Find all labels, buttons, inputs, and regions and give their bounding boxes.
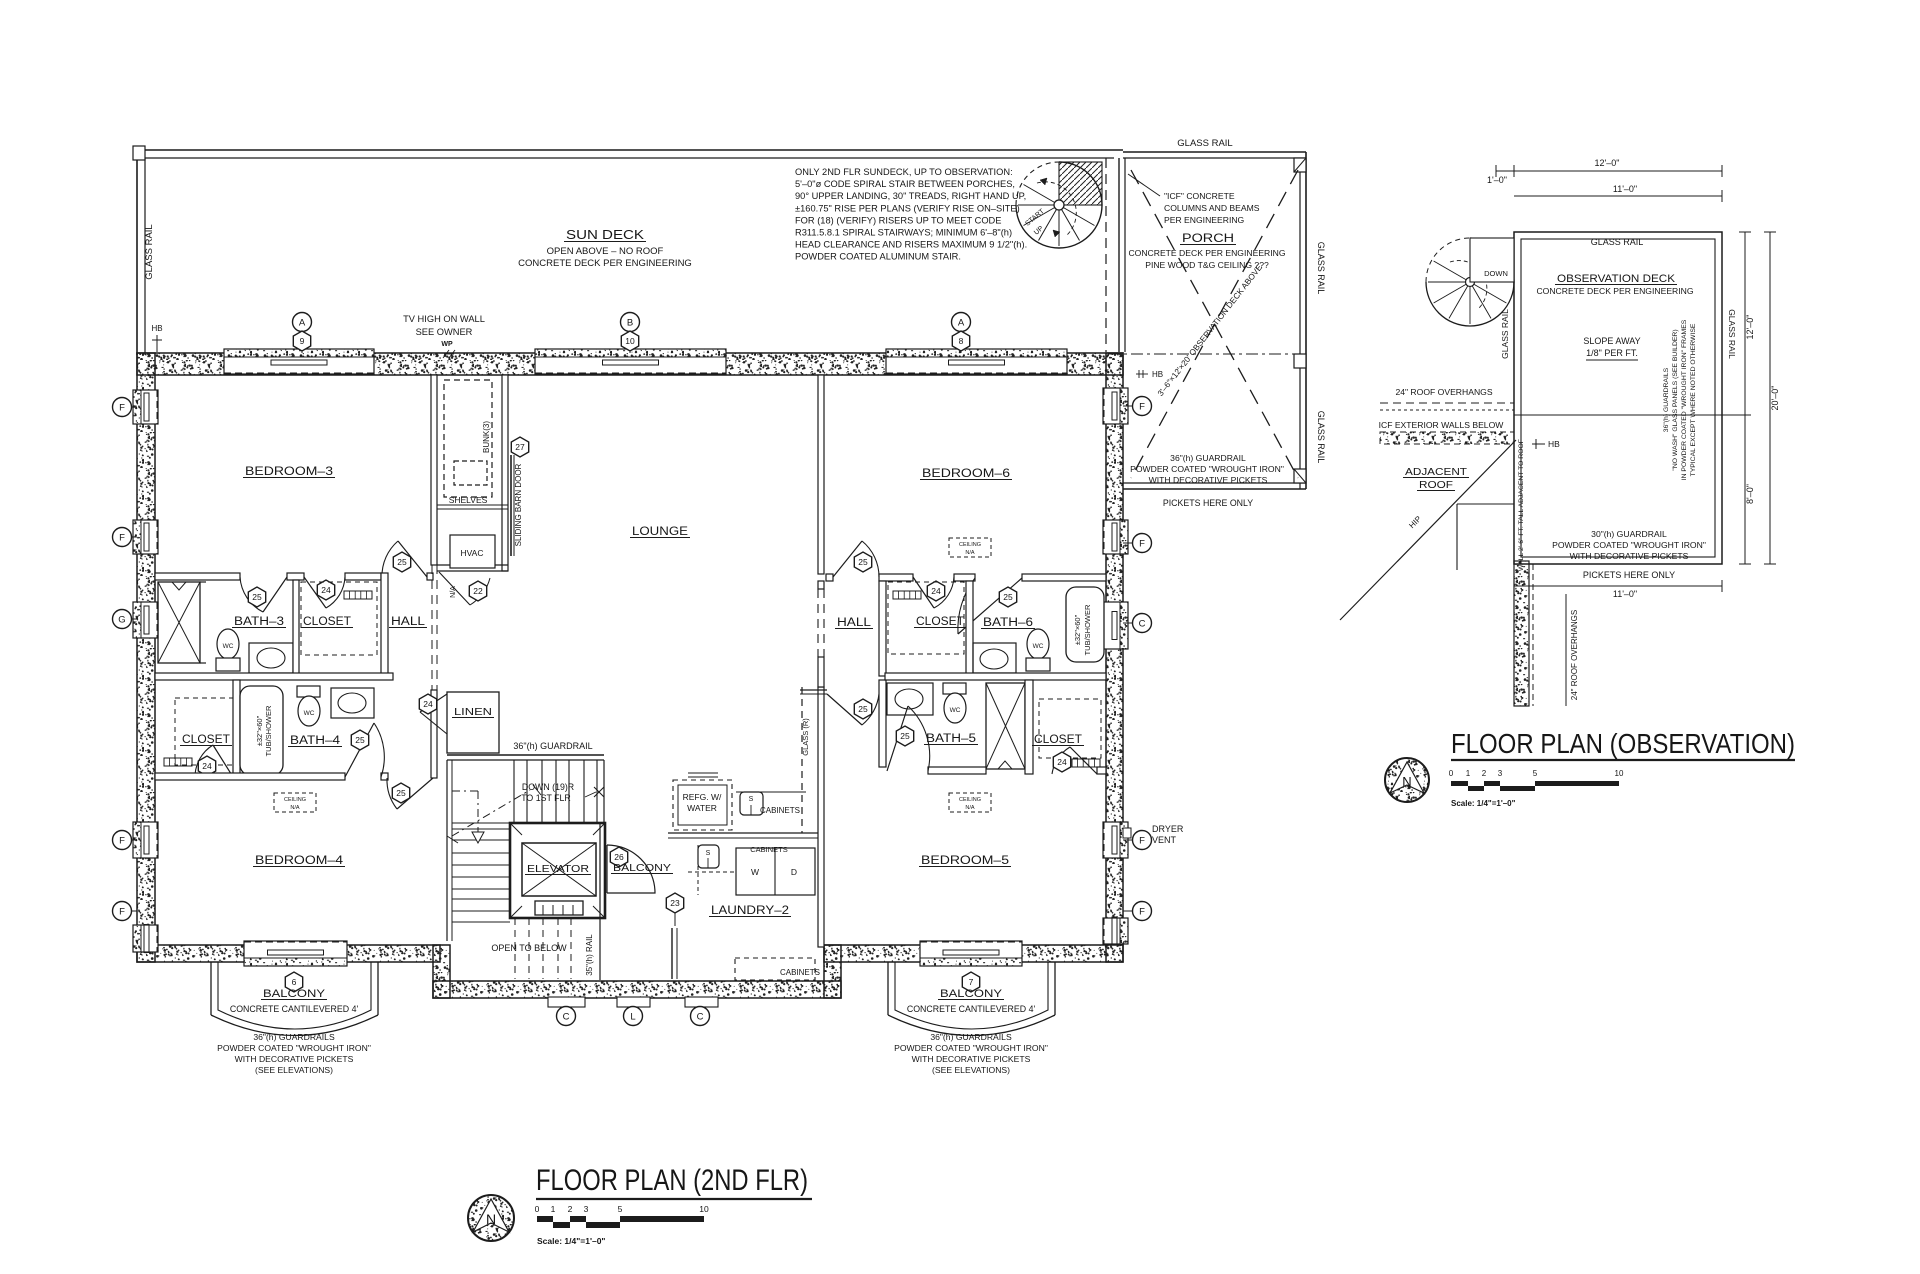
svg-text:CONCRETE CANTILEVERED 4': CONCRETE CANTILEVERED 4': [907, 1004, 1036, 1014]
svg-text:FOR (18) (VERIFY) RISERS UP TO: FOR (18) (VERIFY) RISERS UP TO MEET CODE: [795, 215, 1001, 225]
svg-text:PICKETS HERE ONLY: PICKETS HERE ONLY: [1163, 498, 1253, 508]
svg-text:36"(h) GUARDRAIL: 36"(h) GUARDRAIL: [513, 741, 592, 751]
svg-text:BATH–4: BATH–4: [290, 735, 341, 747]
svg-text:10: 10: [625, 336, 635, 346]
svg-text:CEILING: CEILING: [959, 797, 981, 803]
svg-text:3: 3: [584, 1204, 589, 1214]
svg-text:BATH–5: BATH–5: [926, 733, 976, 745]
svg-text:A: A: [958, 317, 965, 328]
svg-text:PORCH: PORCH: [1182, 231, 1234, 245]
svg-text:TO 1ST FLR: TO 1ST FLR: [521, 793, 571, 803]
svg-text:N/A: N/A: [965, 550, 975, 556]
svg-text:BEDROOM–3: BEDROOM–3: [245, 464, 333, 478]
svg-text:FLOOR PLAN (2ND FLR): FLOOR PLAN (2ND FLR): [536, 1164, 808, 1197]
svg-text:(SEE ELEVATIONS): (SEE ELEVATIONS): [932, 1065, 1010, 1075]
svg-text:5: 5: [618, 1204, 623, 1214]
svg-text:SHELVES: SHELVES: [449, 495, 488, 505]
svg-text:23: 23: [670, 898, 680, 908]
svg-text:HEAD CLEARANCE AND RISERS MAXI: HEAD CLEARANCE AND RISERS MAXIMUM 9 1/2"…: [795, 240, 1027, 250]
svg-text:CONCRETE DECK PER ENGINEERING: CONCRETE DECK PER ENGINEERING: [1128, 248, 1285, 258]
svg-text:OBSERVATION DECK: OBSERVATION DECK: [1557, 273, 1676, 285]
svg-text:GLASS RAIL: GLASS RAIL: [1727, 309, 1737, 359]
svg-text:±32"×60": ±32"×60": [255, 715, 264, 746]
svg-text:ADJACENT: ADJACENT: [1405, 467, 1467, 478]
svg-text:25: 25: [355, 735, 365, 745]
svg-text:"ICF" CONCRETE: "ICF" CONCRETE: [1164, 191, 1235, 201]
svg-text:CABINETS: CABINETS: [760, 806, 800, 815]
svg-text:11'–0": 11'–0": [1613, 184, 1637, 194]
svg-text:B: B: [627, 317, 633, 328]
svg-text:GLASS RAIL: GLASS RAIL: [1316, 242, 1326, 295]
svg-text:1: 1: [551, 1204, 556, 1214]
svg-text:2: 2: [1482, 769, 1487, 778]
svg-text:24: 24: [321, 585, 331, 595]
svg-text:24" ROOF OVERHANGS: 24" ROOF OVERHANGS: [1395, 387, 1492, 397]
svg-text:DOWN (19)R: DOWN (19)R: [522, 782, 574, 792]
svg-text:24: 24: [1057, 757, 1067, 767]
svg-text:24: 24: [931, 586, 941, 596]
svg-text:HB: HB: [1152, 370, 1163, 379]
svg-text:N: N: [486, 1211, 496, 1227]
svg-text:BALCONY: BALCONY: [613, 862, 671, 874]
svg-text:POWDER COATED ALUMINUM STAIR.: POWDER COATED ALUMINUM STAIR.: [795, 252, 961, 262]
svg-text:36"(h) GUARDRAILS: 36"(h) GUARDRAILS: [253, 1032, 335, 1042]
svg-text:11'–0": 11'–0": [1613, 589, 1637, 599]
svg-text:CABINETS: CABINETS: [780, 968, 820, 977]
svg-text:F: F: [1139, 538, 1145, 549]
svg-text:BATH–6: BATH–6: [983, 617, 1033, 629]
svg-text:N/A: N/A: [450, 586, 457, 598]
svg-text:10: 10: [699, 1204, 709, 1214]
svg-text:BEDROOM–5: BEDROOM–5: [921, 853, 1009, 867]
svg-text:WATER: WATER: [687, 803, 717, 813]
svg-text:20'–0": 20'–0": [1770, 386, 1780, 411]
svg-text:G: G: [118, 614, 125, 625]
svg-text:27: 27: [515, 442, 525, 452]
svg-text:VENT: VENT: [1152, 835, 1177, 845]
svg-text:DRYER: DRYER: [1152, 824, 1184, 834]
svg-text:2: 2: [568, 1204, 573, 1214]
svg-text:GLASS RAIL: GLASS RAIL: [144, 224, 155, 279]
svg-text:ELEVATOR: ELEVATOR: [527, 863, 589, 875]
svg-text:C: C: [563, 1011, 570, 1022]
svg-text:WC: WC: [304, 710, 315, 717]
svg-text:POWDER COATED "WROUGHT IRON": POWDER COATED "WROUGHT IRON": [1130, 464, 1284, 474]
svg-text:R311.5.8.1 SPIRAL STAIRWAYS; M: R311.5.8.1 SPIRAL STAIRWAYS; MINIMUM 6'–…: [795, 228, 1012, 238]
svg-text:LAUNDRY–2: LAUNDRY–2: [711, 905, 789, 917]
svg-text:25: 25: [252, 592, 262, 602]
svg-text:1'–0": 1'–0": [1487, 175, 1507, 185]
svg-text:L: L: [630, 1011, 635, 1022]
svg-text:ONLY 2ND FLR SUNDECK, UP TO OB: ONLY 2ND FLR SUNDECK, UP TO OBSERVATION:: [795, 167, 1013, 177]
svg-text:C: C: [697, 1011, 704, 1022]
svg-text:WALL 2'-6" FT. TALL ADJACENT T: WALL 2'-6" FT. TALL ADJACENT TO ROOF: [1518, 439, 1525, 571]
svg-text:PICKETS HERE ONLY: PICKETS HERE ONLY: [1583, 570, 1675, 580]
svg-text:DOWN: DOWN: [1484, 269, 1508, 278]
svg-text:25: 25: [858, 704, 868, 714]
svg-text:7: 7: [969, 977, 974, 987]
svg-text:HB: HB: [1548, 439, 1560, 449]
svg-text:22: 22: [473, 586, 483, 596]
svg-text:CABINETS: CABINETS: [750, 845, 788, 854]
svg-text:WP: WP: [441, 341, 453, 348]
svg-text:CLOSET: CLOSET: [303, 616, 351, 628]
svg-text:FLOOR PLAN (OBSERVATION): FLOOR PLAN (OBSERVATION): [1451, 728, 1795, 759]
svg-text:GLASS RAIL: GLASS RAIL: [1591, 237, 1644, 247]
svg-text:SUN DECK: SUN DECK: [566, 227, 644, 242]
svg-text:GLASS (R): GLASS (R): [801, 718, 810, 756]
svg-text:CLOSET: CLOSET: [1034, 734, 1082, 746]
svg-text:CLOSET: CLOSET: [182, 734, 230, 746]
svg-text:WITH DECORATIVE PICKETS: WITH DECORATIVE PICKETS: [235, 1054, 354, 1064]
svg-text:GLASS RAIL: GLASS RAIL: [1177, 138, 1232, 149]
svg-text:OPEN ABOVE – NO ROOF: OPEN ABOVE – NO ROOF: [547, 246, 664, 257]
svg-text:F: F: [1139, 906, 1145, 917]
svg-text:90° UPPER LANDING, 30" TREADS,: 90° UPPER LANDING, 30" TREADS, RIGHT HAN…: [795, 191, 1026, 201]
svg-text:COLUMNS AND BEAMS: COLUMNS AND BEAMS: [1164, 203, 1260, 213]
svg-text:CEILING: CEILING: [959, 542, 981, 548]
svg-text:PINE WOOD T&G CEILING ???: PINE WOOD T&G CEILING ???: [1145, 260, 1269, 270]
svg-text:25: 25: [397, 557, 407, 567]
svg-text:24: 24: [202, 761, 212, 771]
svg-text:SLIDING BARN DOOR: SLIDING BARN DOOR: [514, 463, 523, 546]
svg-text:C: C: [1139, 618, 1146, 629]
svg-text:CONCRETE DECK PER ENGINEERING: CONCRETE DECK PER ENGINEERING: [1536, 286, 1693, 296]
svg-text:TV HIGH ON WALL: TV HIGH ON WALL: [403, 314, 485, 324]
svg-text:W: W: [751, 867, 759, 877]
svg-text:10: 10: [1615, 769, 1624, 778]
svg-text:F: F: [1139, 401, 1145, 412]
svg-text:HALL: HALL: [837, 617, 872, 629]
svg-text:3: 3: [1498, 769, 1503, 778]
svg-text:D: D: [791, 867, 797, 877]
svg-text:BEDROOM–6: BEDROOM–6: [922, 466, 1010, 480]
svg-text:24: 24: [423, 699, 433, 709]
svg-text:8'–0": 8'–0": [1745, 484, 1755, 504]
svg-text:5'–0"ø CODE SPIRAL STAIR BETWE: 5'–0"ø CODE SPIRAL STAIR BETWEEN PORCHES…: [795, 179, 1015, 189]
svg-text:POWDER COATED "WROUGHT IRON": POWDER COATED "WROUGHT IRON": [217, 1043, 371, 1053]
svg-text:WC: WC: [950, 707, 961, 714]
svg-text:25: 25: [1003, 592, 1013, 602]
svg-text:TUB/SHOWER: TUB/SHOWER: [1083, 604, 1092, 655]
svg-text:SLOPE AWAY: SLOPE AWAY: [1583, 336, 1640, 346]
svg-text:F: F: [119, 835, 125, 846]
svg-text:TYPICAL EXCEPT WHERE NOTED OTH: TYPICAL EXCEPT WHERE NOTED OTHERWISE: [1690, 323, 1697, 476]
svg-text:(SEE ELEVATIONS): (SEE ELEVATIONS): [255, 1065, 333, 1075]
svg-text:GLASS RAIL: GLASS RAIL: [1500, 309, 1510, 359]
svg-text:1/8" PER FT.: 1/8" PER FT.: [1586, 348, 1638, 358]
svg-text:N: N: [1402, 774, 1411, 789]
svg-text:30"(h) GUARDRAIL: 30"(h) GUARDRAIL: [1591, 529, 1667, 539]
svg-text:F: F: [119, 402, 125, 413]
svg-text:HALL: HALL: [391, 616, 426, 628]
svg-text:8: 8: [959, 336, 964, 346]
svg-text:26: 26: [614, 852, 624, 862]
svg-text:36"(h) GUARDRAILS: 36"(h) GUARDRAILS: [1663, 367, 1670, 432]
svg-text:F: F: [1139, 835, 1145, 846]
svg-text:BALCONY: BALCONY: [940, 988, 1003, 1000]
svg-text:CEILING: CEILING: [284, 797, 306, 803]
svg-text:F: F: [119, 906, 125, 917]
svg-text:ICF EXTERIOR WALLS BELOW: ICF EXTERIOR WALLS BELOW: [1379, 420, 1505, 430]
svg-text:S: S: [749, 796, 754, 803]
svg-text:WITH DECORATIVE PICKETS: WITH DECORATIVE PICKETS: [912, 1054, 1031, 1064]
svg-text:A: A: [299, 317, 306, 328]
svg-text:Scale: 1/4"=1'–0": Scale: 1/4"=1'–0": [1451, 799, 1516, 808]
svg-text:N/A: N/A: [290, 805, 300, 811]
svg-text:35"(h) RAIL: 35"(h) RAIL: [585, 934, 594, 976]
svg-text:WITH DECORATIVE PICKETS: WITH DECORATIVE PICKETS: [1570, 551, 1689, 561]
svg-text:LOUNGE: LOUNGE: [632, 524, 688, 538]
svg-text:25: 25: [900, 731, 910, 741]
svg-text:12'–0": 12'–0": [1595, 158, 1620, 168]
svg-text:36"(h) GUARDRAIL: 36"(h) GUARDRAIL: [1170, 453, 1246, 463]
svg-text:0: 0: [1449, 769, 1454, 778]
svg-text:5: 5: [1533, 769, 1538, 778]
svg-text:"NO WASH" GLASS PANELS (SEE BU: "NO WASH" GLASS PANELS (SEE BUILDER): [1672, 329, 1679, 470]
svg-text:24" ROOF OVERHANGS: 24" ROOF OVERHANGS: [1570, 610, 1579, 700]
svg-text:0: 0: [535, 1204, 540, 1214]
svg-text:N/A: N/A: [965, 805, 975, 811]
svg-text:25: 25: [858, 557, 868, 567]
svg-text:F: F: [119, 532, 125, 543]
svg-text:CONCRETE DECK PER ENGINEERING: CONCRETE DECK PER ENGINEERING: [518, 258, 692, 269]
svg-text:HB: HB: [151, 324, 162, 333]
svg-text:±160.75" RISE PER PLANS (VERIF: ±160.75" RISE PER PLANS (VERIFY RISE ON–…: [795, 203, 1020, 213]
svg-text:36"(h) GUARDRAILS: 36"(h) GUARDRAILS: [930, 1032, 1012, 1042]
svg-text:HVAC: HVAC: [461, 548, 484, 558]
svg-text:±32"×60": ±32"×60": [1073, 614, 1082, 645]
svg-text:IN POWDER COATED "WROUGHT IRON: IN POWDER COATED "WROUGHT IRON" FRAMES: [1681, 319, 1688, 480]
svg-text:PER ENGINEERING: PER ENGINEERING: [1164, 215, 1245, 225]
svg-text:WC: WC: [223, 643, 234, 650]
svg-text:9: 9: [300, 336, 305, 346]
svg-text:BUNK(3): BUNK(3): [482, 421, 491, 453]
svg-text:TUB/SHOWER: TUB/SHOWER: [264, 705, 273, 756]
svg-text:BEDROOM–4: BEDROOM–4: [255, 853, 343, 867]
svg-text:Scale: 1/4"=1'–0": Scale: 1/4"=1'–0": [537, 1236, 605, 1246]
svg-text:CONCRETE CANTILEVERED 4': CONCRETE CANTILEVERED 4': [230, 1004, 359, 1014]
svg-text:CLOSET: CLOSET: [916, 616, 964, 628]
svg-text:WC: WC: [1033, 643, 1044, 650]
svg-text:S: S: [706, 850, 711, 857]
svg-text:GLASS RAIL: GLASS RAIL: [1316, 411, 1326, 464]
svg-text:POWDER COATED "WROUGHT IRON": POWDER COATED "WROUGHT IRON": [1552, 540, 1706, 550]
svg-text:REFG. W/: REFG. W/: [683, 792, 722, 802]
svg-text:12'–0": 12'–0": [1745, 315, 1755, 340]
svg-text:6: 6: [292, 977, 297, 987]
svg-text:25: 25: [396, 788, 406, 798]
svg-text:ROOF: ROOF: [1419, 480, 1453, 491]
svg-text:BATH–3: BATH–3: [234, 616, 284, 628]
svg-text:1: 1: [1466, 769, 1471, 778]
svg-text:WITH DECORATIVE PICKETS: WITH DECORATIVE PICKETS: [1149, 475, 1268, 485]
svg-text:SEE OWNER: SEE OWNER: [416, 327, 473, 337]
svg-text:POWDER COATED "WROUGHT IRON": POWDER COATED "WROUGHT IRON": [894, 1043, 1048, 1053]
svg-text:LINEN: LINEN: [454, 706, 492, 718]
svg-text:BALCONY: BALCONY: [263, 988, 326, 1000]
